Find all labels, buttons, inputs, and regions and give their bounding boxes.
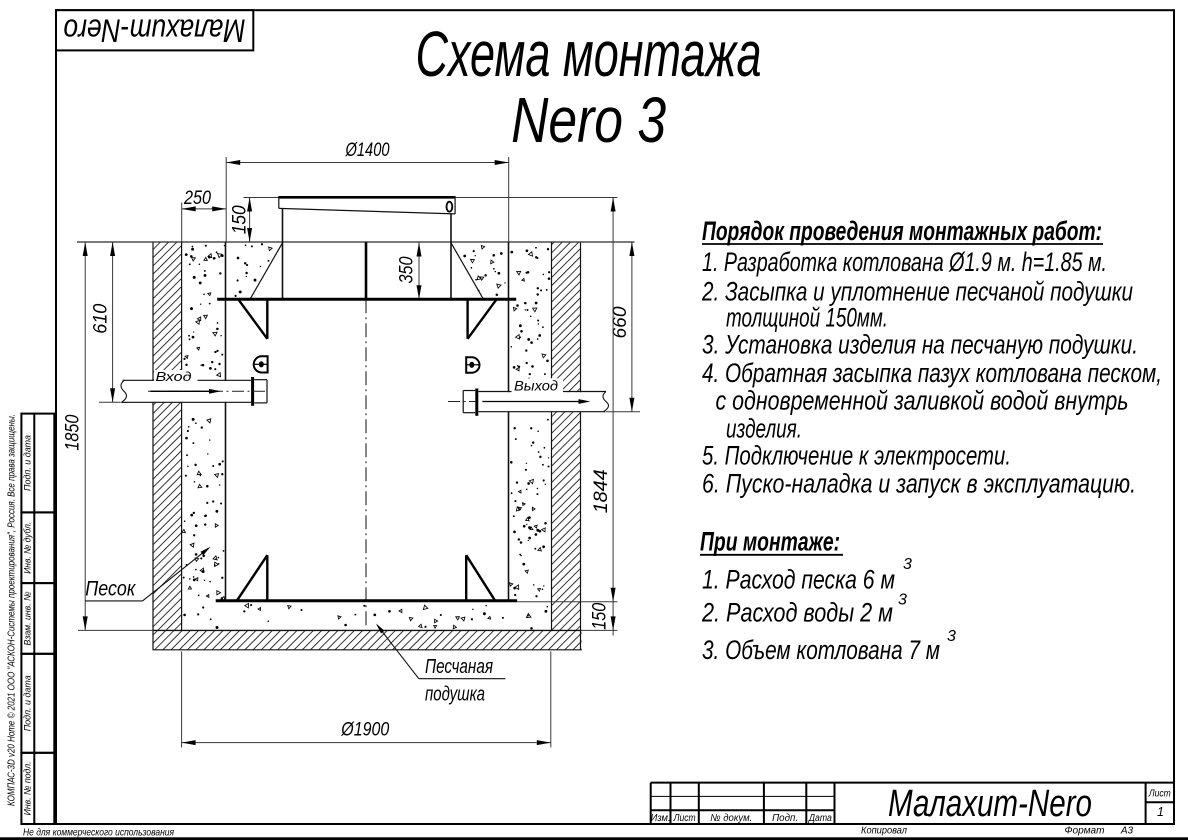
svg-text:Выход: Выход	[514, 379, 559, 394]
svg-text:3. Объем котлована 7 м: 3. Объем котлована 7 м	[702, 635, 940, 665]
svg-text:КОМПАС-3D v20 Home © 2021 ООО: КОМПАС-3D v20 Home © 2021 ООО "АСКОН-Сис…	[7, 414, 18, 806]
svg-text:1844: 1844	[591, 469, 612, 513]
svg-text:3: 3	[898, 592, 907, 609]
svg-text:Nero 3: Nero 3	[511, 84, 666, 156]
svg-text:1. Разработка котлована Ø1.9 м: 1. Разработка котлована Ø1.9 м. h=1.85 м…	[702, 247, 1107, 277]
svg-text:150: 150	[590, 602, 611, 629]
svg-text:1. Расход песка 6 м: 1. Расход песка 6 м	[702, 565, 895, 595]
svg-text:Подп.: Подп.	[772, 813, 798, 824]
svg-text:Ø1400: Ø1400	[345, 140, 390, 161]
svg-text:толщиной 150мм.: толщиной 150мм.	[726, 303, 888, 333]
svg-text:Вход: Вход	[156, 369, 192, 384]
svg-text:610: 610	[90, 303, 111, 333]
svg-text:5. Подключение к электросети.: 5. Подключение к электросети.	[702, 441, 1011, 471]
svg-text:350: 350	[396, 256, 417, 283]
svg-text:Не для коммерческого использов: Не для коммерческого использования	[23, 828, 175, 839]
svg-text:Схема монтажа: Схема монтажа	[416, 18, 762, 90]
svg-text:Инв. № подл.: Инв. № подл.	[23, 761, 34, 815]
svg-text:Изм.: Изм.	[651, 813, 671, 824]
svg-text:Дата: Дата	[808, 813, 832, 824]
svg-text:Подп. и дата: Подп. и дата	[23, 675, 34, 731]
svg-text:Взам. инв. №: Взам. инв. №	[23, 591, 34, 645]
svg-text:150: 150	[230, 205, 251, 234]
svg-text:Подп. и дата: Подп. и дата	[23, 435, 34, 491]
svg-text:с одновременной заливкой водой: с одновременной заливкой водой внутрь	[716, 386, 1129, 416]
svg-text:Формат: Формат	[1065, 826, 1105, 837]
svg-text:Лист: Лист	[673, 813, 696, 824]
svg-text:3: 3	[903, 556, 912, 573]
svg-text:250: 250	[183, 188, 211, 209]
svg-text:1: 1	[1157, 805, 1164, 819]
svg-text:Малахит-Nero: Малахит-Nero	[64, 13, 246, 49]
svg-text:3: 3	[947, 628, 956, 645]
svg-text:2. Расход воды 2 м: 2. Расход воды 2 м	[701, 598, 893, 628]
svg-text:Песок: Песок	[85, 576, 136, 600]
svg-text:Малахит-Nero: Малахит-Nero	[888, 783, 1092, 825]
svg-text:Копировал: Копировал	[861, 825, 907, 836]
svg-text:№ докум.: № докум.	[710, 813, 752, 824]
svg-text:Лист: Лист	[1148, 788, 1171, 800]
svg-text:1850: 1850	[63, 414, 84, 450]
svg-text:Порядок проведения монтажных р: Порядок проведения монтажных работ:	[702, 216, 1102, 246]
svg-text:4. Обратная засыпка пазух котл: 4. Обратная засыпка пазух котлована песк…	[702, 358, 1162, 388]
svg-text:Инв. № дубл.: Инв. № дубл.	[23, 522, 34, 574]
svg-text:Ø1900: Ø1900	[340, 719, 389, 740]
svg-text:изделия.: изделия.	[726, 414, 802, 444]
svg-text:А3: А3	[1120, 826, 1134, 837]
svg-text:3. Установка изделия на песчан: 3. Установка изделия на песчаную подушки…	[702, 330, 1138, 360]
svg-text:При монтаже:: При монтаже:	[700, 527, 840, 557]
svg-text:6. Пуско-наладка и запуск в эк: 6. Пуско-наладка и запуск в эксплуатацию…	[702, 469, 1136, 499]
svg-text:подушка: подушка	[425, 684, 485, 706]
svg-text:Песчаная: Песчаная	[425, 656, 493, 678]
